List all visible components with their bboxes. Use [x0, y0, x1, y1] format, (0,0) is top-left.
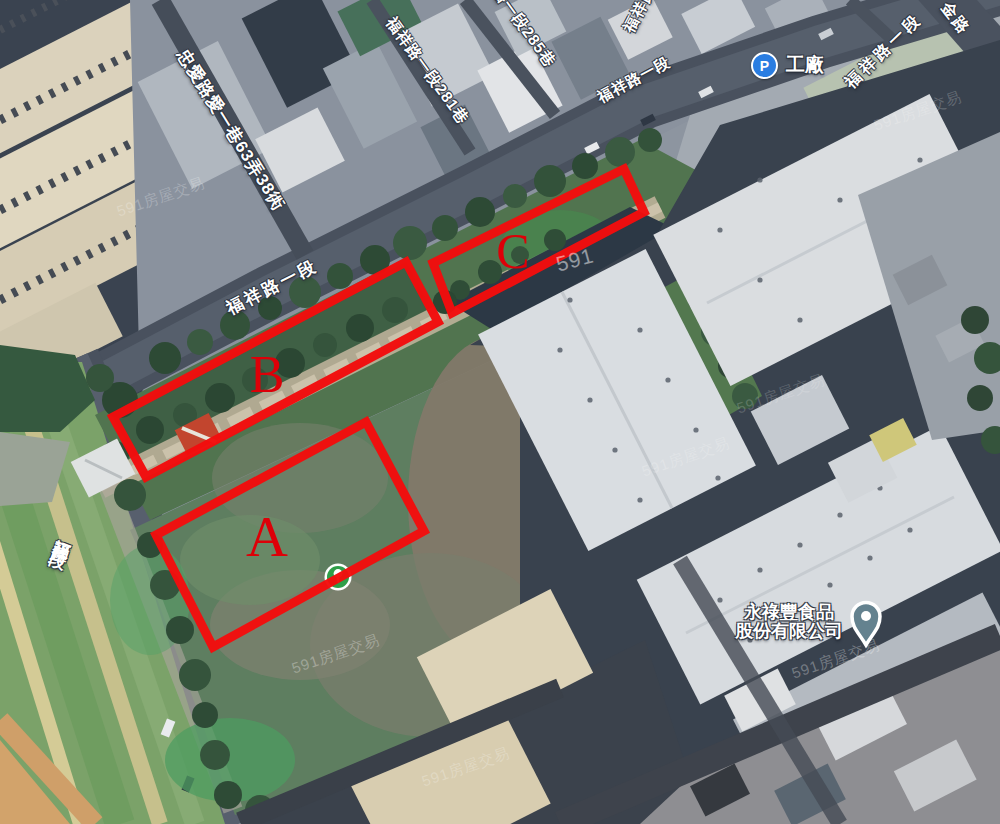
- parking-icon[interactable]: P: [751, 52, 778, 79]
- company-name-line1: 永祿豐食品: [727, 603, 851, 622]
- parking-poi-label[interactable]: 工廠: [786, 52, 824, 78]
- parking-icon-glyph: P: [760, 58, 769, 74]
- aerial-imagery[interactable]: [0, 0, 1000, 824]
- map-viewport[interactable]: 忠愛路愛一巷63弄38衖 福祥路一段281巷 福祥路一段285巷 福祥路一段 福…: [0, 0, 1000, 824]
- company-name-line2: 股份有限公司: [727, 622, 851, 641]
- company-poi-label[interactable]: 永祿豐食品 股份有限公司: [727, 603, 851, 641]
- parcel-b-label: B: [250, 349, 285, 401]
- parcel-c-label: C: [496, 226, 529, 276]
- parcel-a-label: A: [246, 508, 288, 566]
